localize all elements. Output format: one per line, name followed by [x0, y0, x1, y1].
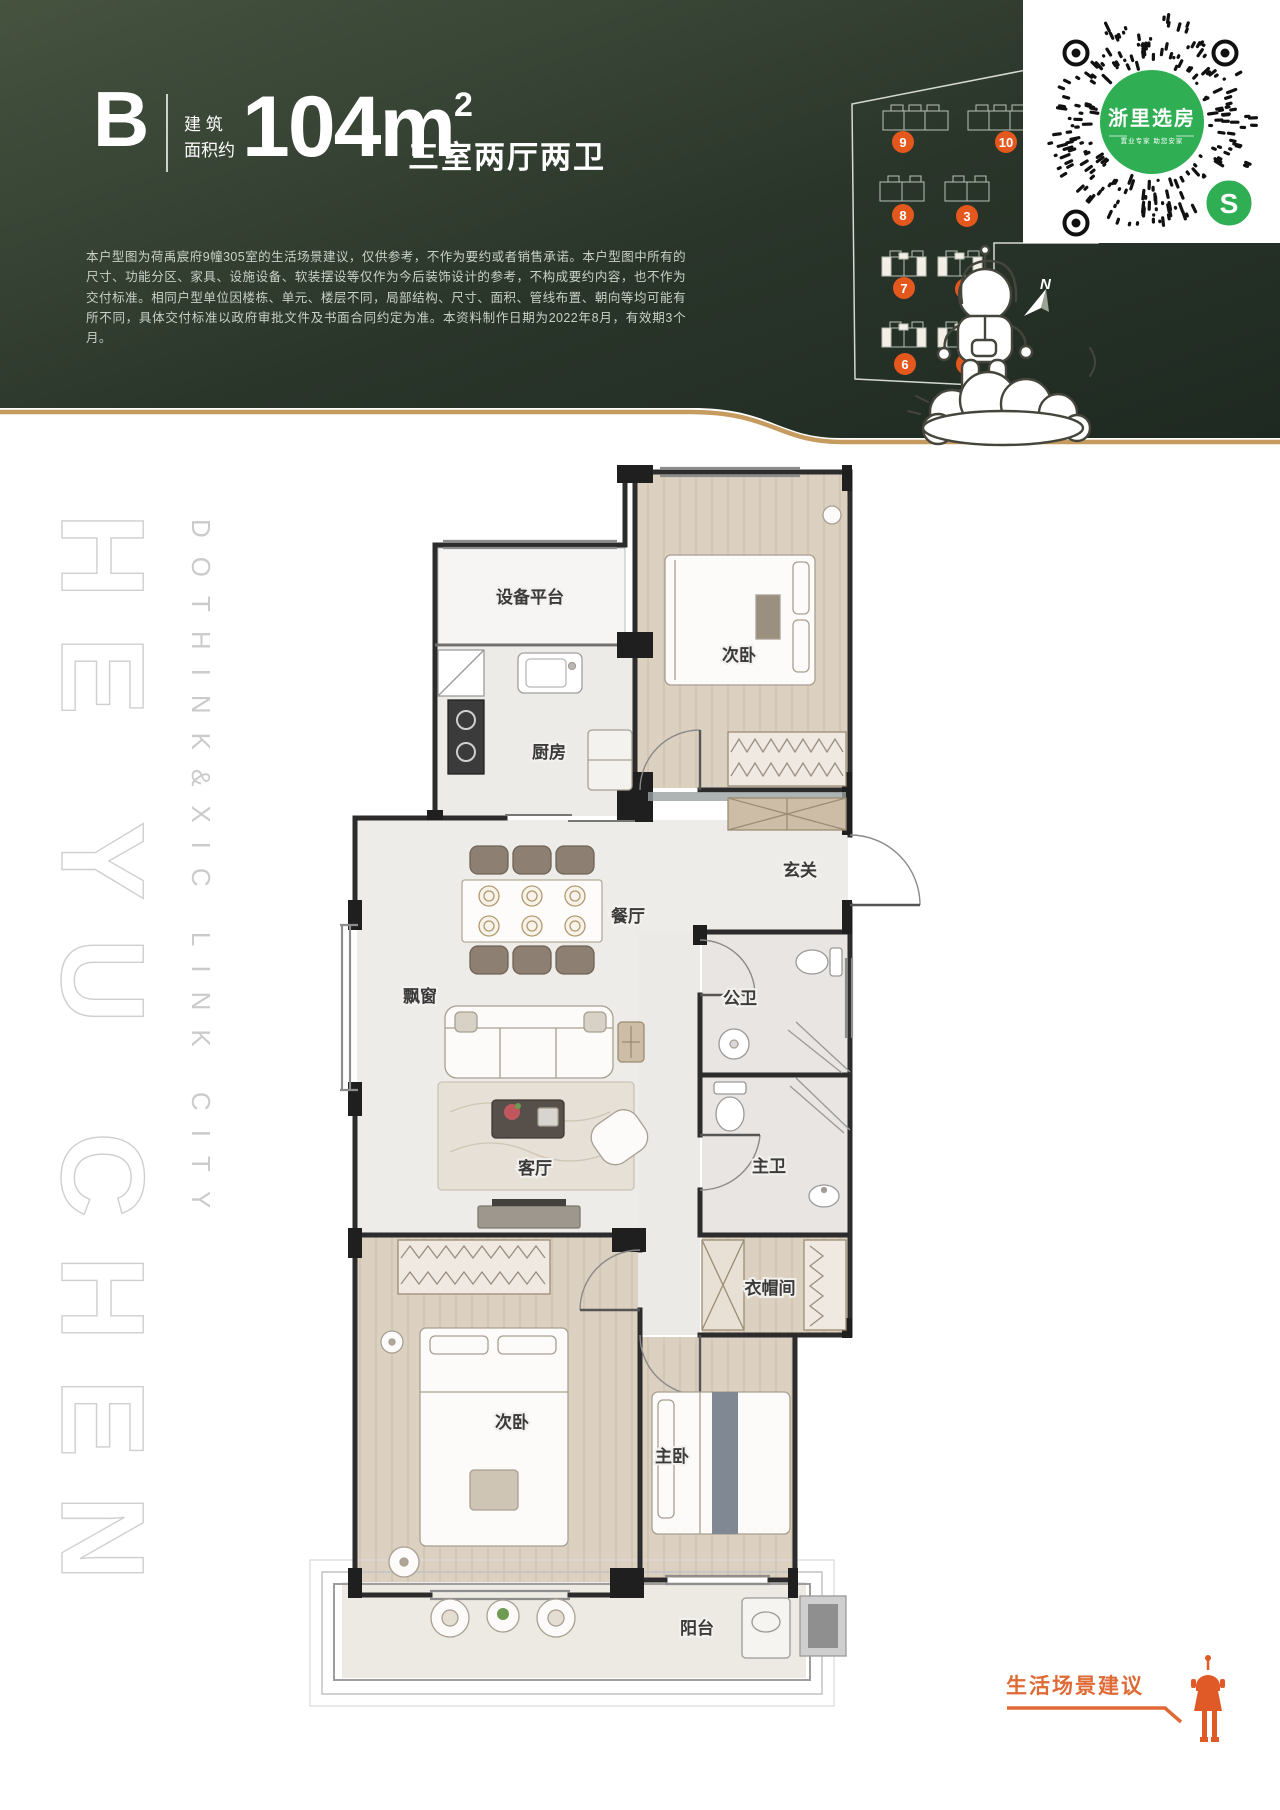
room-label-living-room: 客厅 — [517, 1158, 552, 1178]
qr-tagline: 置业专家 助您安家 — [1121, 136, 1184, 145]
svg-text:7: 7 — [900, 281, 907, 296]
astronaut-illustration-icon — [908, 246, 1095, 445]
plan-and-deco-layer: 9 10 8 3 7 4 6 5 N — [0, 0, 1280, 1810]
room-label-master-bedroom: 主卧 — [655, 1446, 689, 1466]
svg-text:10: 10 — [999, 135, 1013, 150]
room-label-equipment-platform: 设备平台 — [496, 587, 564, 607]
miniprogram-logo-icon: S — [1205, 179, 1253, 227]
room-label-bay-window: 飘窗 — [403, 986, 437, 1006]
room-label-secondary-bedroom-2: 次卧 — [495, 1412, 529, 1432]
svg-text:8: 8 — [899, 208, 906, 223]
room-label-balcony: 阳台 — [680, 1618, 714, 1638]
floorplan-poster: B 建 筑 面积约 104m 2 三室两厅两卫 本户型图为荷禹宸府9幢305室的… — [0, 0, 1280, 1810]
qr-title: 浙里选房 — [1108, 106, 1196, 130]
room-label-dining-room: 餐厅 — [611, 906, 645, 926]
svg-text:6: 6 — [901, 357, 908, 372]
svg-text:S: S — [1220, 188, 1239, 219]
room-label-master-bathroom: 主卫 — [752, 1156, 786, 1176]
room-label-guest-bathroom: 公卫 — [723, 989, 757, 1008]
life-scene-suggestion-label: 生活场景建议 — [1006, 1670, 1144, 1700]
astronaut-silhouette-icon — [1191, 1655, 1225, 1742]
qr-code: 浙里选房 置业专家 助您安家 S — [1023, 0, 1280, 243]
room-label-cloakroom: 衣帽间 — [745, 1278, 796, 1298]
room-label-secondary-bedroom-1: 次卧 — [722, 645, 756, 665]
svg-text:3: 3 — [963, 209, 970, 224]
room-label-kitchen: 厨房 — [532, 742, 566, 762]
floor-plan: 设备平台 厨房 次卧 玄关 餐厅 飘窗 公卫 客厅 主卫 衣帽间 次卧 主卧 阳… — [310, 465, 920, 1706]
room-label-entry: 玄关 — [783, 860, 817, 880]
footer-underline — [1007, 1708, 1181, 1722]
north-arrow-icon: N — [1024, 276, 1052, 316]
svg-text:9: 9 — [899, 135, 906, 150]
